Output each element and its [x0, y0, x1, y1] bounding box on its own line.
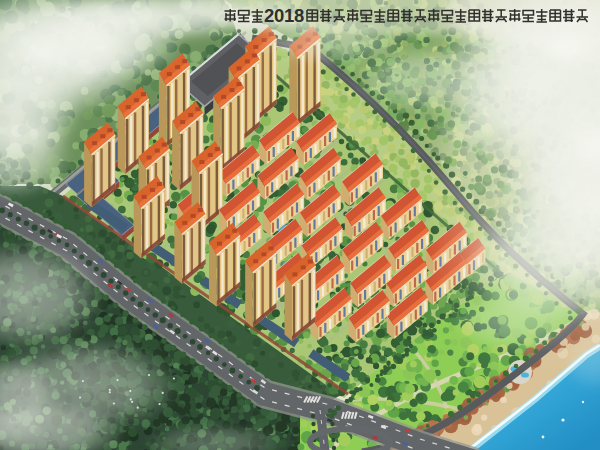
svg-text:2018: 2018 [264, 5, 304, 26]
